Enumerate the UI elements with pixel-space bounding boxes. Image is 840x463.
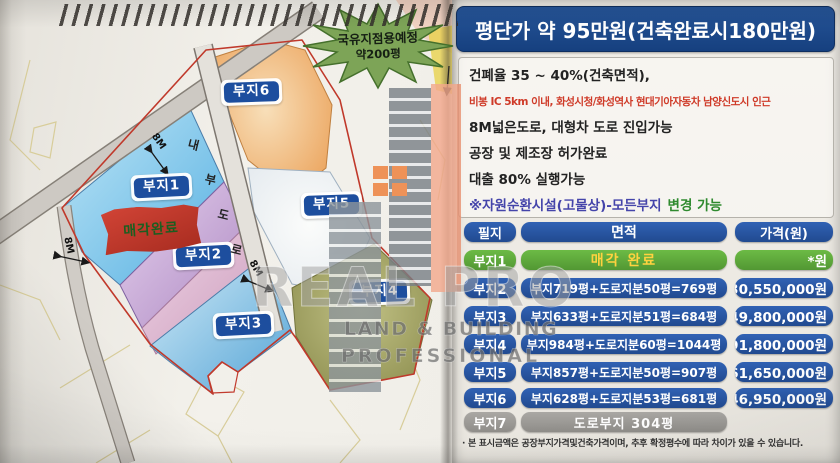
table-row: 부지2 부지719평+도로지분50평=769평 730,550,000원	[452, 278, 840, 298]
starburst-text: 국유지점용예정 약200평	[337, 30, 419, 63]
cell-price: 649,800,000원	[735, 306, 833, 326]
cell-price: 646,950,000원	[735, 388, 833, 408]
photo-scene: 부지6 부지1 부지2 부지3 부지5 부지4 매각완료 내 부 도 로 8M …	[0, 0, 840, 463]
table-header: 필지 면적 가격(원)	[452, 222, 840, 242]
table-row: 부지1 매각 완료 *원	[452, 250, 840, 270]
cell-area: 부지719평+도로지분50평=769평	[521, 278, 727, 298]
highlights-box: 건폐율 35 ~ 40%(건축면적), 비봉 IC 5km 이내, 화성시청/화…	[458, 57, 834, 218]
cell-plot: 부지1	[464, 250, 516, 270]
plot-label-buji5: 부지5	[301, 191, 363, 219]
table-row: 부지4 부지984평+도로지분60평=1044평 991,800,000원	[452, 334, 840, 354]
cell-area: 부지628평+도로지분53평=681평	[521, 388, 727, 408]
info-line: 공장 및 제조장 허가완료	[469, 141, 823, 167]
cell-area: 매각 완료	[521, 250, 727, 270]
footnote: · 본 표시금액은 공장부지가격및건축가격이며, 추후 확정평수에 따라 차이가…	[462, 436, 836, 449]
cell-area: 부지984평+도로지분60평=1044평	[521, 334, 727, 354]
sold-flag-text: 매각완료	[123, 217, 180, 241]
header-plot: 필지	[464, 222, 516, 242]
cell-plot: 부지3	[464, 306, 516, 326]
cell-price: 991,800,000원	[735, 334, 833, 354]
info-line: 8M넓은도로, 대형차 도로 진입가능	[469, 115, 823, 141]
table-row: 부지6 부지628평+도로지분53평=681평 646,950,000원	[452, 388, 840, 408]
info-page: 평단가 약 95만원(건축완료시180만원) 건폐율 35 ~ 40%(건축면적…	[452, 0, 840, 463]
cell-area: 도로부지 304평	[521, 412, 727, 432]
cell-plot: 부지5	[464, 362, 516, 382]
page-title: 평단가 약 95만원(건축완료시180만원)	[456, 6, 835, 52]
info-line: 대출 80% 실행가능	[469, 167, 823, 193]
table-row: 부지3 부지633평+도로지분51평=684평 649,800,000원	[452, 306, 840, 326]
cell-plot: 부지6	[464, 388, 516, 408]
cell-price: 861,650,000원	[735, 362, 833, 382]
cell-price: *원	[735, 250, 833, 270]
spiral-binding-icon	[56, 4, 458, 26]
cell-plot: 부지2	[464, 278, 516, 298]
cell-area: 부지857평+도로지분50평=907평	[521, 362, 727, 382]
info-line-note: ※자원순환시설(고물상)-모든부지변경 가능	[469, 193, 823, 219]
table-row: 부지5 부지857평+도로지분50평=907평 861,650,000원	[452, 362, 840, 382]
info-line: 건폐율 35 ~ 40%(건축면적),	[469, 63, 823, 89]
plot-label-buji6: 부지6	[221, 78, 283, 106]
info-line-location: 비봉 IC 5km 이내, 화성시청/화성역사 현대기아자동차 남양신도시 인근	[469, 89, 823, 115]
cell-plot: 부지7	[464, 412, 516, 432]
header-price: 가격(원)	[735, 222, 833, 242]
cell-price: 730,550,000원	[735, 278, 833, 298]
header-area: 면적	[521, 222, 727, 242]
plot-label-buji3: 부지3	[212, 310, 274, 339]
table-row: 부지7 도로부지 304평	[452, 412, 840, 432]
cell-area: 부지633평+도로지분51평=684평	[521, 306, 727, 326]
page-title-text: 평단가 약 95만원(건축완료시180만원)	[475, 15, 816, 44]
plot-label-buji1: 부지1	[130, 172, 192, 201]
plot-label-buji4: 부지4	[349, 278, 411, 306]
cell-plot: 부지4	[464, 334, 516, 354]
price-table: 필지 면적 가격(원) 부지1 매각 완료 *원 부지2 부지719평+도로지분…	[452, 222, 840, 436]
